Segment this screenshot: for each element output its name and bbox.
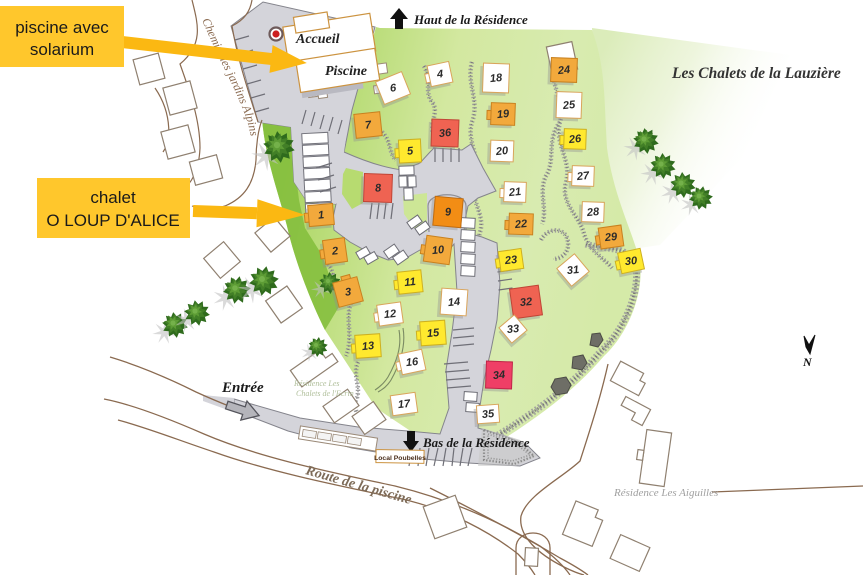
- svg-text:Chalets de l'Ecrin: Chalets de l'Ecrin: [296, 389, 354, 398]
- svg-text:Résidence Les Aiguilles: Résidence Les Aiguilles: [613, 487, 718, 499]
- svg-text:22: 22: [513, 218, 527, 231]
- svg-text:19: 19: [496, 108, 510, 121]
- svg-text:32: 32: [519, 296, 532, 309]
- svg-text:12: 12: [383, 308, 396, 321]
- svg-text:Résidence Les: Résidence Les: [293, 379, 340, 388]
- svg-text:29: 29: [603, 231, 618, 244]
- svg-text:3: 3: [344, 286, 351, 299]
- svg-text:N: N: [802, 355, 813, 369]
- svg-text:27: 27: [575, 170, 590, 183]
- svg-text:Bas de la Résidence: Bas de la Résidence: [422, 435, 530, 450]
- svg-text:13: 13: [361, 340, 374, 353]
- svg-text:21: 21: [507, 186, 521, 199]
- svg-text:chalet: chalet: [90, 188, 136, 207]
- svg-text:35: 35: [481, 408, 495, 421]
- svg-text:24: 24: [556, 64, 570, 77]
- svg-text:4: 4: [435, 68, 443, 81]
- svg-text:14: 14: [447, 296, 460, 309]
- svg-text:26: 26: [567, 133, 582, 146]
- svg-text:31: 31: [566, 264, 579, 277]
- svg-text:17: 17: [397, 398, 411, 411]
- svg-text:2: 2: [330, 245, 338, 258]
- svg-text:23: 23: [503, 254, 517, 267]
- svg-text:30: 30: [624, 255, 638, 268]
- svg-text:16: 16: [405, 356, 419, 369]
- svg-text:15: 15: [426, 327, 440, 340]
- svg-text:36: 36: [438, 127, 452, 140]
- svg-text:O LOUP D'ALICE: O LOUP D'ALICE: [46, 211, 179, 230]
- svg-text:34: 34: [492, 369, 505, 382]
- svg-text:piscine avec: piscine avec: [15, 18, 109, 37]
- svg-text:Piscine: Piscine: [325, 64, 367, 79]
- svg-text:Les Chalets de la Lauzière: Les Chalets de la Lauzière: [671, 65, 841, 82]
- svg-text:33: 33: [506, 323, 519, 336]
- svg-text:11: 11: [404, 276, 417, 289]
- svg-text:solarium: solarium: [30, 40, 94, 59]
- svg-text:1: 1: [317, 209, 324, 222]
- svg-text:Local Poubelles: Local Poubelles: [374, 455, 426, 462]
- svg-text:18: 18: [489, 72, 503, 85]
- svg-text:Haut de la Résidence: Haut de la Résidence: [413, 12, 528, 27]
- svg-text:28: 28: [585, 206, 600, 219]
- svg-text:25: 25: [561, 99, 576, 112]
- svg-text:20: 20: [494, 145, 509, 158]
- svg-text:10: 10: [431, 244, 445, 257]
- svg-text:Entrée: Entrée: [221, 380, 264, 396]
- svg-text:Accueil: Accueil: [295, 32, 340, 47]
